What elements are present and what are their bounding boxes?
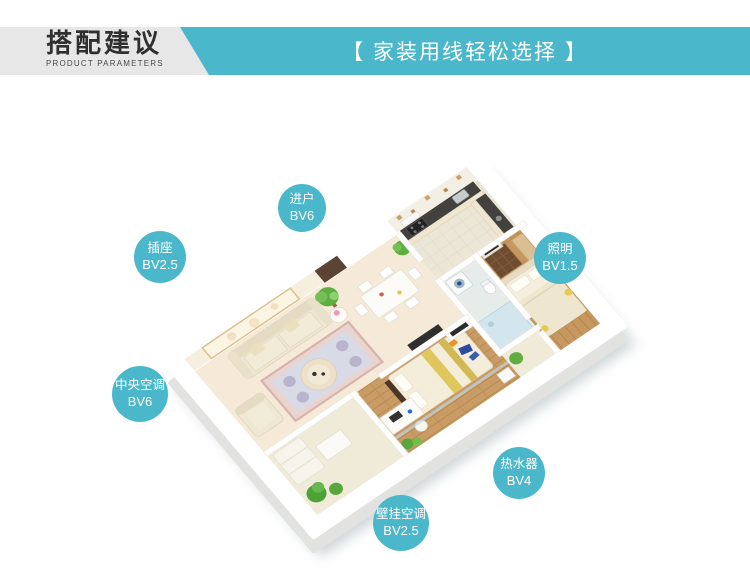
- callout-spec: BV6: [128, 394, 153, 410]
- callout-entry: 进户 BV6: [278, 184, 326, 232]
- callout-spec: BV2.5: [142, 257, 177, 273]
- callout-spec: BV1.5: [542, 258, 577, 274]
- page: 【 家装用线轻松选择 】 搭配建议 PRODUCT PARAMETERS: [0, 0, 750, 584]
- callout-spec: BV4: [507, 473, 532, 489]
- apartment: [167, 155, 628, 540]
- callout-label: 热水器: [500, 457, 538, 473]
- floorplan-illustration: [0, 0, 750, 584]
- callout-lighting: 照明 BV1.5: [534, 232, 586, 284]
- callout-label: 插座: [147, 241, 172, 257]
- callout-label: 壁挂空调: [376, 507, 426, 523]
- callout-label: 照明: [547, 242, 572, 258]
- callout-central-ac: 中央空调 BV6: [112, 366, 168, 422]
- callout-spec: BV2.5: [383, 523, 418, 539]
- callout-spec: BV6: [290, 208, 315, 224]
- callout-wall-ac: 壁挂空调 BV2.5: [373, 495, 429, 551]
- callout-label: 进户: [289, 192, 314, 208]
- callout-socket: 插座 BV2.5: [134, 231, 186, 283]
- callout-label: 中央空调: [115, 378, 165, 394]
- callout-water-heater: 热水器 BV4: [493, 447, 545, 499]
